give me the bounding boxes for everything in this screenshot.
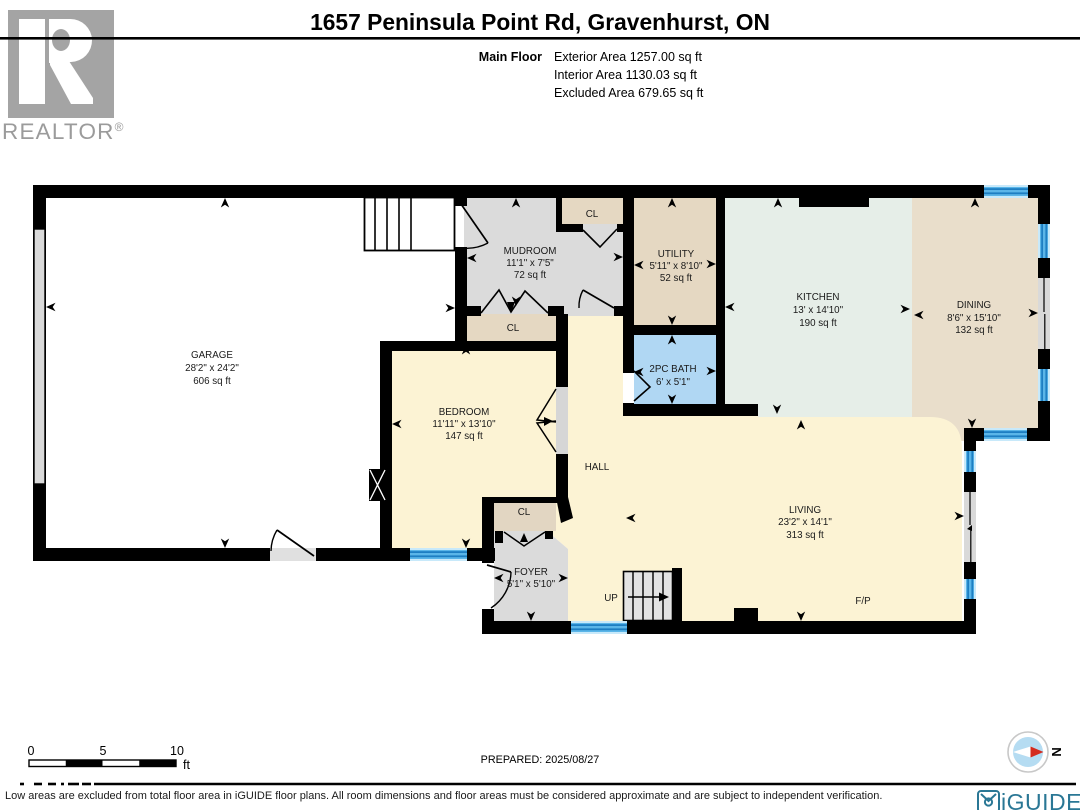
svg-text:CL: CL — [518, 507, 531, 518]
svg-text:132 sq ft: 132 sq ft — [955, 325, 993, 336]
svg-text:UTILITY: UTILITY — [658, 249, 695, 260]
svg-text:CL: CL — [507, 323, 520, 334]
svg-text:FOYER: FOYER — [514, 567, 548, 578]
svg-text:10: 10 — [170, 744, 184, 758]
svg-text:5'11" x 8'10": 5'11" x 8'10" — [649, 261, 703, 272]
svg-text:147 sq ft: 147 sq ft — [445, 431, 483, 442]
svg-text:1657 Peninsula Point Rd, Grave: 1657 Peninsula Point Rd, Gravenhurst, ON — [310, 9, 770, 35]
svg-text:REALTOR®: REALTOR® — [2, 119, 125, 144]
svg-text:CL: CL — [586, 209, 599, 220]
svg-text:11'1" x 7'5": 11'1" x 7'5" — [506, 258, 554, 269]
svg-text:DINING: DINING — [957, 300, 991, 311]
svg-text:KITCHEN: KITCHEN — [796, 292, 839, 303]
svg-text:5: 5 — [100, 744, 107, 758]
svg-text:Low areas are excluded from to: Low areas are excluded from total floor … — [5, 790, 882, 802]
svg-text:BEDROOM: BEDROOM — [439, 407, 490, 418]
svg-text:0: 0 — [28, 744, 35, 758]
svg-text:5'1" x 5'10": 5'1" x 5'10" — [507, 579, 556, 590]
svg-text:F/P: F/P — [855, 596, 871, 607]
svg-text:HALL: HALL — [585, 462, 610, 473]
svg-text:6' x 5'1": 6' x 5'1" — [656, 377, 690, 388]
svg-text:Main Floor: Main Floor — [479, 50, 542, 64]
svg-text:606 sq ft: 606 sq ft — [193, 376, 231, 387]
svg-text:PREPARED: 2025/08/27: PREPARED: 2025/08/27 — [481, 754, 600, 766]
svg-text:GARAGE: GARAGE — [191, 350, 233, 361]
svg-text:Excluded Area 679.65 sq ft: Excluded Area 679.65 sq ft — [554, 86, 704, 100]
svg-text:ft: ft — [183, 758, 190, 772]
svg-text:11'11" x 13'10": 11'11" x 13'10" — [432, 419, 496, 430]
svg-text:8'6" x 15'10": 8'6" x 15'10" — [947, 313, 1001, 324]
svg-text:Interior Area 1130.03 sq ft: Interior Area 1130.03 sq ft — [554, 68, 697, 82]
svg-text:190 sq ft: 190 sq ft — [799, 318, 837, 329]
svg-text:MUDROOM: MUDROOM — [504, 246, 557, 257]
svg-text:72 sq ft: 72 sq ft — [514, 270, 546, 281]
svg-text:UP: UP — [604, 593, 618, 604]
svg-text:LIVING: LIVING — [789, 505, 821, 516]
svg-text:N: N — [1049, 747, 1064, 756]
svg-text:13' x 14'10": 13' x 14'10" — [793, 305, 844, 316]
svg-text:iGUIDE: iGUIDE — [1001, 789, 1080, 810]
svg-text:28'2" x 24'2": 28'2" x 24'2" — [185, 363, 239, 374]
svg-text:23'2" x 14'1": 23'2" x 14'1" — [778, 517, 832, 528]
svg-text:313 sq ft: 313 sq ft — [786, 530, 824, 541]
svg-text:52 sq ft: 52 sq ft — [660, 273, 692, 284]
svg-text:2PC BATH: 2PC BATH — [649, 364, 696, 375]
svg-text:Exterior Area 1257.00 sq ft: Exterior Area 1257.00 sq ft — [554, 50, 703, 64]
